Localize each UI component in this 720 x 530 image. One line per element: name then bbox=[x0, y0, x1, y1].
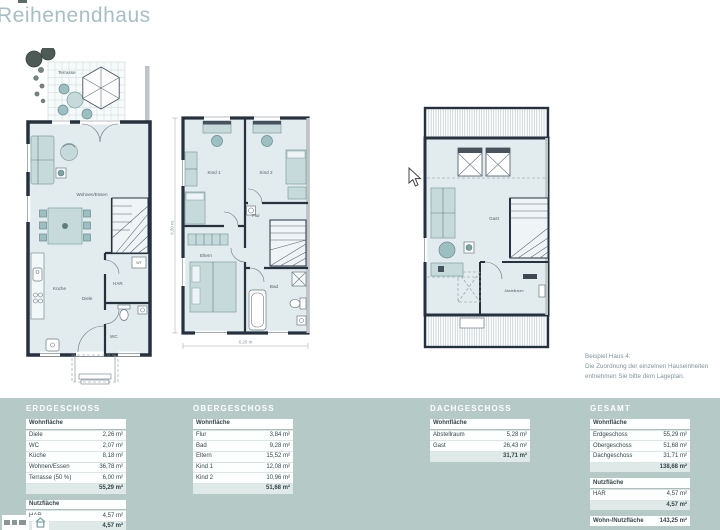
party-wall bbox=[145, 66, 150, 122]
row-value: 2,07 m² bbox=[103, 443, 123, 450]
row-value: 9,28 m² bbox=[270, 443, 290, 450]
stamp-mark bbox=[4, 520, 10, 525]
room-label-diele: Diele bbox=[82, 296, 93, 301]
plant-table bbox=[464, 242, 474, 253]
total-value: 138,68 m² bbox=[660, 464, 687, 471]
section-header-label: Nutzfläche bbox=[593, 480, 623, 487]
wardrobe bbox=[431, 188, 455, 238]
row-value: 6,00 m² bbox=[103, 475, 123, 482]
table-total-row: 55,29 m² bbox=[26, 483, 126, 494]
room-label-bad: Bad bbox=[270, 284, 279, 289]
windows bbox=[423, 238, 427, 262]
table-row: Abstellraum5,28 m² bbox=[430, 430, 530, 441]
table-section-header: Nutzfläche bbox=[590, 478, 690, 489]
summary-label: Wohn-/Nutzfläche bbox=[593, 518, 644, 525]
svg-text:9,30 m: 9,30 m bbox=[170, 221, 175, 235]
row-label: HAR bbox=[593, 491, 606, 498]
row-label: Abstellraum bbox=[433, 432, 465, 439]
note-line-2: Die Zuordnung der einzelnen Hauseinheite… bbox=[585, 362, 717, 372]
document-page: Reihenendhaus Terrasse bbox=[0, 0, 720, 530]
mouse-cursor bbox=[408, 167, 424, 189]
section-header-label: Wohnfläche bbox=[29, 420, 63, 427]
staircase bbox=[510, 198, 548, 258]
table-total-row: 51,68 m² bbox=[193, 483, 293, 494]
table-row: Kind 112,08 m² bbox=[193, 462, 293, 473]
row-label: Kind 1 bbox=[196, 464, 213, 471]
row-value: 5,28 m² bbox=[507, 432, 527, 439]
row-label: Obergeschoss bbox=[593, 443, 632, 450]
table-row: Wohnen/Essen36,78 m² bbox=[26, 462, 126, 473]
table-title: GESAMT bbox=[590, 404, 690, 413]
table-section-header: Nutzfläche bbox=[26, 500, 126, 511]
roof-window-bottom bbox=[460, 318, 484, 328]
terrace-chair bbox=[59, 84, 69, 94]
dimension-width: 6,20 m bbox=[183, 340, 308, 350]
kitchen-counter bbox=[31, 253, 44, 319]
row-value: 10,96 m² bbox=[266, 475, 290, 482]
room-label-terrasse: Terrasse bbox=[58, 70, 76, 75]
row-label: Kind 2 bbox=[196, 475, 213, 482]
table-row: Flur3,84 m² bbox=[193, 430, 293, 441]
skylight bbox=[486, 148, 510, 176]
row-value: 4,57 m² bbox=[667, 491, 687, 498]
table-row: Eltern15,52 m² bbox=[193, 451, 293, 462]
row-label: Terrasse (50 %) bbox=[29, 475, 71, 482]
room-label-wohnen-essen: Wohnen/Essen bbox=[76, 192, 108, 197]
table-row: Diele2,26 m² bbox=[26, 430, 126, 441]
table-total-row: 31,71 m² bbox=[430, 451, 530, 462]
table-section: NutzflächeHAR4,57 m²4,57 m² bbox=[590, 478, 690, 510]
table-total-row: 138,68 m² bbox=[590, 462, 690, 473]
row-label: Küche bbox=[29, 453, 46, 460]
table-row: Obergeschoss51,68 m² bbox=[590, 440, 690, 451]
room-label-flur: Flur bbox=[252, 213, 260, 218]
wardrobe-eltern bbox=[188, 234, 228, 245]
stamp-mark bbox=[12, 520, 17, 525]
row-value: 55,29 m² bbox=[663, 432, 687, 439]
table-section: WohnflächeFlur3,84 m²Bad9,28 m²Eltern15,… bbox=[193, 419, 293, 494]
table-section-header: Wohnfläche bbox=[590, 419, 690, 430]
table-section-header: Wohnfläche bbox=[26, 419, 126, 430]
row-label: WC bbox=[29, 443, 39, 450]
kitchen-sink-unit bbox=[46, 339, 59, 351]
room-label-wc: WC bbox=[110, 334, 118, 339]
desk bbox=[431, 263, 463, 276]
stamp-mark bbox=[19, 520, 26, 525]
total-value: 55,29 m² bbox=[99, 485, 123, 492]
table-row: Küche8,18 m² bbox=[26, 451, 126, 462]
table-section: WohnflächeAbstellraum5,28 m²Gast26,43 m²… bbox=[430, 419, 530, 462]
row-label: Diele bbox=[29, 432, 43, 439]
row-value: 15,52 m² bbox=[266, 453, 290, 460]
table-section-header: Wohnfläche bbox=[430, 419, 530, 430]
logo-stamp-mark bbox=[32, 515, 49, 530]
screen-edge-artifact bbox=[18, 0, 27, 3]
row-value: 26,43 m² bbox=[503, 443, 527, 450]
sofa bbox=[31, 136, 54, 184]
row-label: Erdgeschoss bbox=[593, 432, 628, 439]
section-header-label: Nutzfläche bbox=[29, 501, 59, 508]
bathtub bbox=[249, 290, 266, 330]
table-row: HAR4,57 m² bbox=[590, 489, 690, 500]
page-title: Reihenendhaus bbox=[0, 4, 151, 28]
room-label-kueche: Küche bbox=[53, 286, 66, 291]
logo-stamp-text bbox=[2, 515, 29, 530]
table-section-header: Wohnfläche bbox=[193, 419, 293, 430]
room-label-kind2: Kind 2 bbox=[259, 170, 272, 175]
table-total-row: 4,57 m² bbox=[590, 500, 690, 511]
table-title: OBERGESCHOSS bbox=[193, 404, 293, 413]
table-row: Bad9,28 m² bbox=[193, 440, 293, 451]
section-header-label: Wohnfläche bbox=[593, 420, 627, 427]
table-title: ERDGESCHOSS bbox=[26, 404, 126, 413]
bed-kind2 bbox=[286, 150, 306, 184]
table-dachgeschoss: DACHGESCHOSSWohnflächeAbstellraum5,28 m²… bbox=[430, 404, 530, 468]
summary-row: Wohn-/Nutzfläche143,25 m² bbox=[590, 516, 690, 526]
note-text: Beispiel Haus 4: Die Zuordnung der einze… bbox=[585, 352, 717, 382]
washer-dryer: WT bbox=[132, 257, 146, 268]
row-label: Eltern bbox=[196, 453, 212, 460]
table-row: Terrasse (50 %)6,00 m² bbox=[26, 472, 126, 483]
floorplan-erdgeschoss: Terrasse bbox=[20, 48, 170, 398]
plant-table bbox=[56, 168, 66, 178]
terrace-table bbox=[67, 92, 83, 108]
total-value: 31,71 m² bbox=[503, 453, 527, 460]
staircase bbox=[270, 220, 306, 266]
roof-top bbox=[425, 108, 548, 138]
table-row: Erdgeschoss55,29 m² bbox=[590, 430, 690, 441]
terrace-chair bbox=[82, 109, 92, 119]
row-value: 3,84 m² bbox=[270, 432, 290, 439]
wardrobe-kind2 bbox=[288, 187, 306, 199]
room-label-eltern: Eltern bbox=[200, 253, 212, 258]
house-icon bbox=[35, 517, 46, 528]
label-wt: WT bbox=[136, 261, 142, 265]
floorplan-dachgeschoss: Gast Abstellraum bbox=[418, 100, 553, 355]
row-value: 2,26 m² bbox=[103, 432, 123, 439]
row-label: Wohnen/Essen bbox=[29, 464, 70, 471]
entrance-porch bbox=[72, 355, 118, 384]
total-value: 4,57 m² bbox=[666, 502, 687, 509]
section-header-label: Wohnfläche bbox=[433, 420, 467, 427]
bed-kind1 bbox=[185, 192, 205, 224]
row-label: Bad bbox=[196, 443, 207, 450]
summary-value: 143,25 m² bbox=[660, 518, 687, 525]
double-bed bbox=[190, 262, 236, 312]
row-value: 36,78 m² bbox=[99, 464, 123, 471]
room-label-har: HAR bbox=[113, 281, 123, 286]
armchair bbox=[439, 242, 455, 258]
summary-band: ERDGESCHOSSWohnflächeDiele2,26 m²WC2,07 … bbox=[0, 398, 720, 530]
bath-sink bbox=[297, 316, 306, 325]
note-line-1: Beispiel Haus 4: bbox=[585, 352, 717, 362]
wc-sink bbox=[138, 306, 147, 314]
room-label-kind1: Kind 1 bbox=[207, 170, 220, 175]
skylight bbox=[458, 148, 482, 176]
table-gesamt: GESAMTWohnflächeErdgeschoss55,29 m²Oberg… bbox=[590, 404, 690, 530]
total-value: 51,68 m² bbox=[266, 485, 290, 492]
party-wall bbox=[306, 118, 309, 333]
row-value: 4,57 m² bbox=[103, 513, 123, 520]
table-row: Kind 210,96 m² bbox=[193, 472, 293, 483]
floorplan-obergeschoss: Kind 1 Kind 2 Flur Eltern Bad 6,20 m 9,3… bbox=[168, 108, 320, 353]
table-row: Dachgeschoss31,71 m² bbox=[590, 451, 690, 462]
section-header-label: Wohnfläche bbox=[196, 420, 230, 427]
terrace: Terrasse bbox=[48, 62, 125, 122]
row-value: 12,08 m² bbox=[266, 464, 290, 471]
shower bbox=[292, 272, 306, 286]
table-section: WohnflächeErdgeschoss55,29 m²Obergeschos… bbox=[590, 419, 690, 472]
wardrobe-kind1 bbox=[185, 152, 197, 186]
total-value: 4,57 m² bbox=[102, 523, 123, 530]
row-value: 31,71 m² bbox=[663, 453, 687, 460]
table-summary: Wohn-/Nutzfläche143,25 m² bbox=[590, 516, 690, 526]
staircase bbox=[112, 198, 148, 253]
table-section: WohnflächeDiele2,26 m²WC2,07 m²Küche8,18… bbox=[26, 419, 126, 494]
armchair bbox=[61, 144, 78, 161]
row-label: Gast bbox=[433, 443, 446, 450]
room-label-gast: Gast bbox=[489, 216, 499, 221]
dimension-depth: 9,30 m bbox=[170, 118, 179, 333]
table-obergeschoss: OBERGESCHOSSWohnflächeFlur3,84 m²Bad9,28… bbox=[193, 404, 293, 500]
row-label: Dachgeschoss bbox=[593, 453, 632, 460]
table-row: WC2,07 m² bbox=[26, 440, 126, 451]
table-row: Gast26,43 m² bbox=[430, 440, 530, 451]
roof-bottom bbox=[425, 315, 548, 347]
room-label-abstellraum: Abstellraum bbox=[505, 289, 524, 293]
note-line-3: entnehmen Sie bitte dem Lageplan. bbox=[585, 372, 717, 382]
terrace-chair bbox=[58, 105, 68, 115]
table-erdgeschoss: ERDGESCHOSSWohnflächeDiele2,26 m²WC2,07 … bbox=[26, 404, 126, 530]
row-value: 8,18 m² bbox=[103, 453, 123, 460]
row-label: Flur bbox=[196, 432, 206, 439]
table-title: DACHGESCHOSS bbox=[430, 404, 530, 413]
svg-text:6,20 m: 6,20 m bbox=[239, 340, 253, 345]
row-value: 51,68 m² bbox=[663, 443, 687, 450]
